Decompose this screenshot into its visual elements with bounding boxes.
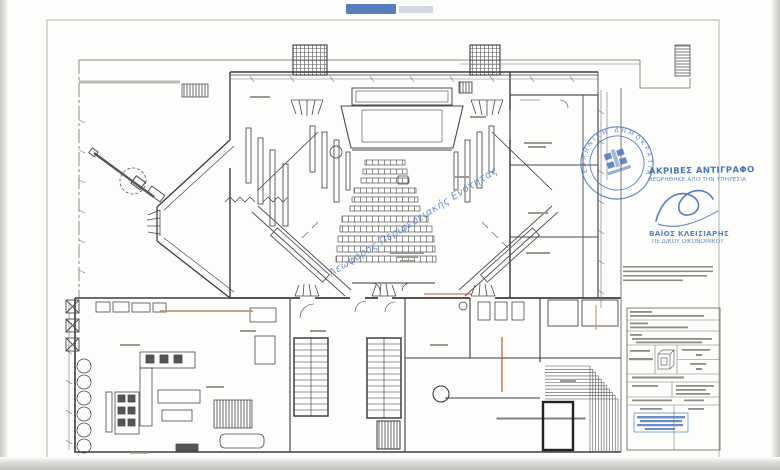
service-wing [75, 298, 621, 452]
kitchen-area [66, 300, 276, 453]
signature [656, 191, 718, 227]
stairwells [294, 300, 618, 449]
micro-labels [120, 96, 576, 454]
disclaimer-text [623, 266, 713, 281]
title-block-stamp [634, 413, 688, 432]
amphitheatre-steps [543, 366, 618, 452]
seal-emblem [601, 146, 631, 175]
certified-copy-subtitle: ΘΕΩΡΗΘΗΚΕ ΑΠΟ ΤΗΝ ΥΠΗΡΕΣΙΑ [648, 177, 746, 183]
key-diagram [658, 350, 674, 369]
certified-copy-label: ΑΚΡΙΒΕΣ ΑΝΤΙΓΡΑΦΟ [649, 165, 755, 177]
title-block [627, 308, 720, 450]
title-block-text [629, 311, 714, 410]
red-accents [160, 294, 596, 392]
scan-edge-left [0, 0, 8, 470]
scan-edge-right [771, 0, 780, 470]
column-grid [66, 300, 91, 453]
round-seal: ΕΛΛΗΝΙΚΗ ΔΗΜΟΚΡΑΤΙΑ [571, 118, 662, 209]
right-wing-rooms [510, 72, 598, 298]
scan-edge-bottom [0, 457, 780, 470]
scan-header-chip-secondary [399, 6, 433, 13]
scanned-drawing-page: ΕΛΛΗΝΙΚΗ ΔΗΜΟΚΡΑΤΙΑ [0, 0, 780, 470]
scan-header-chip [346, 4, 396, 14]
signer-title: ΠΕ Δ/ΚΟΥ ΟΙΚΟΝΟΜΙΚΟΥ [652, 239, 724, 245]
crane-symbol [89, 148, 165, 202]
signer-name: ΒΑΪΟΣ ΚΛΕΙΣΙΑΡΗΣ [649, 229, 729, 238]
